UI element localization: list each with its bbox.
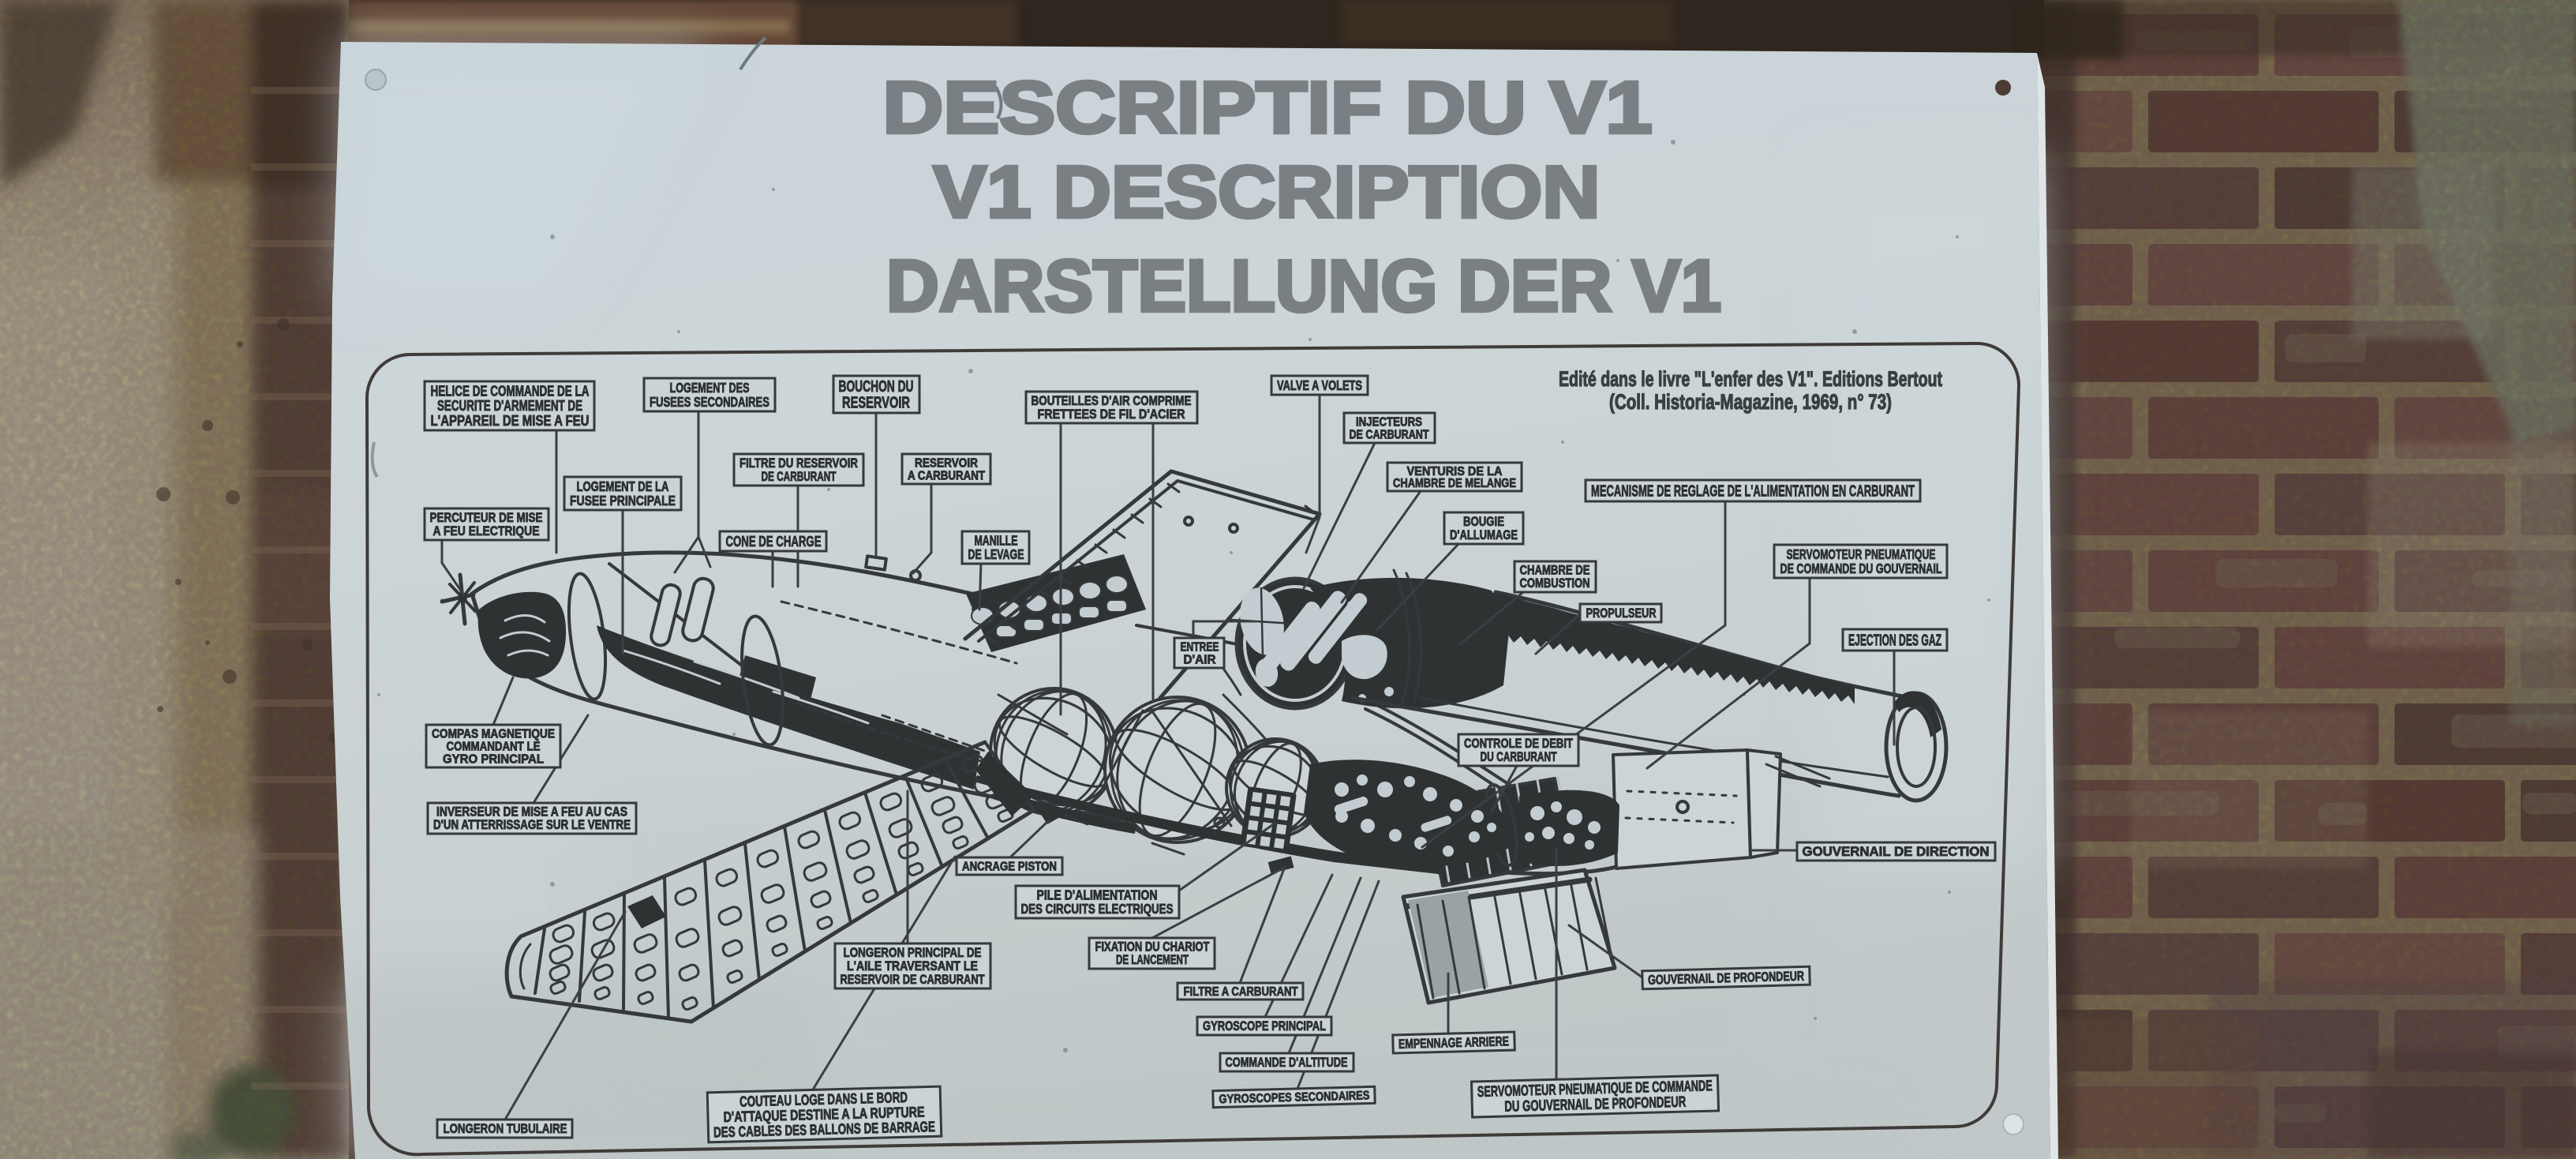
svg-text:D'UN ATTERRISSAGE SUR LE VENTR: D'UN ATTERRISSAGE SUR LE VENTRE: [433, 818, 631, 832]
svg-text:GYRO PRINCIPAL: GYRO PRINCIPAL: [443, 752, 544, 766]
svg-text:DESCRIPTIF DU V1: DESCRIPTIF DU V1: [883, 66, 1653, 148]
svg-text:CONE DE CHARGE: CONE DE CHARGE: [726, 533, 822, 549]
svg-text:COMMANDANT LE: COMMANDANT LE: [447, 740, 541, 753]
svg-text:D'ALLUMAGE: D'ALLUMAGE: [1450, 527, 1518, 542]
svg-text:DE CARBURANT: DE CARBURANT: [762, 469, 837, 484]
svg-text:L'APPAREIL DE MISE A FEU: L'APPAREIL DE MISE A FEU: [431, 412, 590, 429]
svg-text:MECANISME DE REGLAGE DE L'ALIM: MECANISME DE REGLAGE DE L'ALIMENTATION E…: [1591, 482, 1915, 501]
svg-text:DES CIRCUITS ELECTRIQUES: DES CIRCUITS ELECTRIQUES: [1021, 902, 1174, 917]
svg-text:D'AIR: D'AIR: [1184, 653, 1216, 666]
svg-text:Edité dans le livre "L'enfer d: Edité dans le livre "L'enfer des V1". Ed…: [1559, 367, 1942, 391]
svg-text:PILE D'ALIMENTATION: PILE D'ALIMENTATION: [1037, 888, 1158, 903]
svg-text:RESERVOIR: RESERVOIR: [915, 456, 978, 470]
svg-text:FUSEE PRINCIPALE: FUSEE PRINCIPALE: [570, 493, 676, 508]
svg-text:V1 DESCRIPTION: V1 DESCRIPTION: [934, 151, 1601, 233]
svg-text:ENTREE: ENTREE: [1181, 640, 1219, 654]
svg-text:INVERSEUR DE MISE A FEU AU CAS: INVERSEUR DE MISE A FEU AU CAS: [436, 805, 627, 820]
svg-text:CHAMBRE DE: CHAMBRE DE: [1520, 564, 1590, 578]
svg-text:LOGEMENT DES: LOGEMENT DES: [670, 380, 750, 396]
svg-text:FIXATION DU CHARIOT: FIXATION DU CHARIOT: [1095, 940, 1210, 955]
svg-text:BOUCHON DU: BOUCHON DU: [839, 378, 914, 396]
svg-text:LOGEMENT DE LA: LOGEMENT DE LA: [577, 478, 669, 494]
svg-text:ANCRAGE PISTON: ANCRAGE PISTON: [962, 860, 1057, 873]
svg-text:FILTRE A CARBURANT: FILTRE A CARBURANT: [1184, 985, 1298, 999]
svg-text:(Coll. Historia-Magazine, 1969: (Coll. Historia-Magazine, 1969, n° 73): [1609, 390, 1892, 414]
svg-text:DARSTELLUNG DER V1: DARSTELLUNG DER V1: [886, 245, 1721, 327]
svg-text:DE COMMANDE DU GOUVERNAIL: DE COMMANDE DU GOUVERNAIL: [1780, 561, 1942, 576]
svg-text:CHAMBRE DE MELANGE: CHAMBRE DE MELANGE: [1393, 477, 1516, 490]
svg-text:A CARBURANT: A CARBURANT: [908, 469, 985, 482]
svg-text:RESERVOIR: RESERVOIR: [842, 395, 910, 412]
svg-text:VALVE A VOLETS: VALVE A VOLETS: [1277, 377, 1362, 393]
svg-text:RESERVOIR DE CARBURANT: RESERVOIR DE CARBURANT: [841, 972, 986, 987]
svg-text:SERVOMOTEUR PNEUMATIQUE: SERVOMOTEUR PNEUMATIQUE: [1787, 546, 1936, 562]
svg-text:COMPAS MAGNETIQUE: COMPAS MAGNETIQUE: [432, 727, 555, 741]
svg-text:COMMANDE D'ALTITUDE: COMMANDE D'ALTITUDE: [1226, 1055, 1348, 1070]
svg-text:EMPENNAGE ARRIERE: EMPENNAGE ARRIERE: [1398, 1033, 1509, 1052]
svg-text:DE LEVAGE: DE LEVAGE: [968, 547, 1024, 562]
svg-text:COMBUSTION: COMBUSTION: [1520, 576, 1590, 591]
svg-text:DE CARBURANT: DE CARBURANT: [1350, 428, 1429, 441]
svg-text:PROPULSEUR: PROPULSEUR: [1586, 606, 1657, 621]
svg-text:FUSEES SECONDAIRES: FUSEES SECONDAIRES: [650, 394, 769, 410]
svg-text:EJECTION DES GAZ: EJECTION DES GAZ: [1848, 632, 1941, 650]
svg-text:LONGERON TUBULAIRE: LONGERON TUBULAIRE: [444, 1121, 567, 1136]
svg-text:INJECTEURS: INJECTEURS: [1356, 415, 1422, 429]
svg-text:DE LANCEMENT: DE LANCEMENT: [1116, 953, 1189, 967]
svg-text:MANILLE: MANILLE: [975, 534, 1018, 549]
svg-text:A FEU ELECTRIQUE: A FEU ELECTRIQUE: [433, 523, 540, 538]
svg-text:FRETTEES DE FIL D'ACIER: FRETTEES DE FIL D'ACIER: [1038, 407, 1185, 422]
svg-text:GOUVERNAIL DE DIRECTION: GOUVERNAIL DE DIRECTION: [1803, 844, 1990, 859]
svg-text:GYROSCOPE PRINCIPAL: GYROSCOPE PRINCIPAL: [1203, 1018, 1326, 1033]
svg-text:DU CARBURANT: DU CARBURANT: [1481, 749, 1558, 764]
